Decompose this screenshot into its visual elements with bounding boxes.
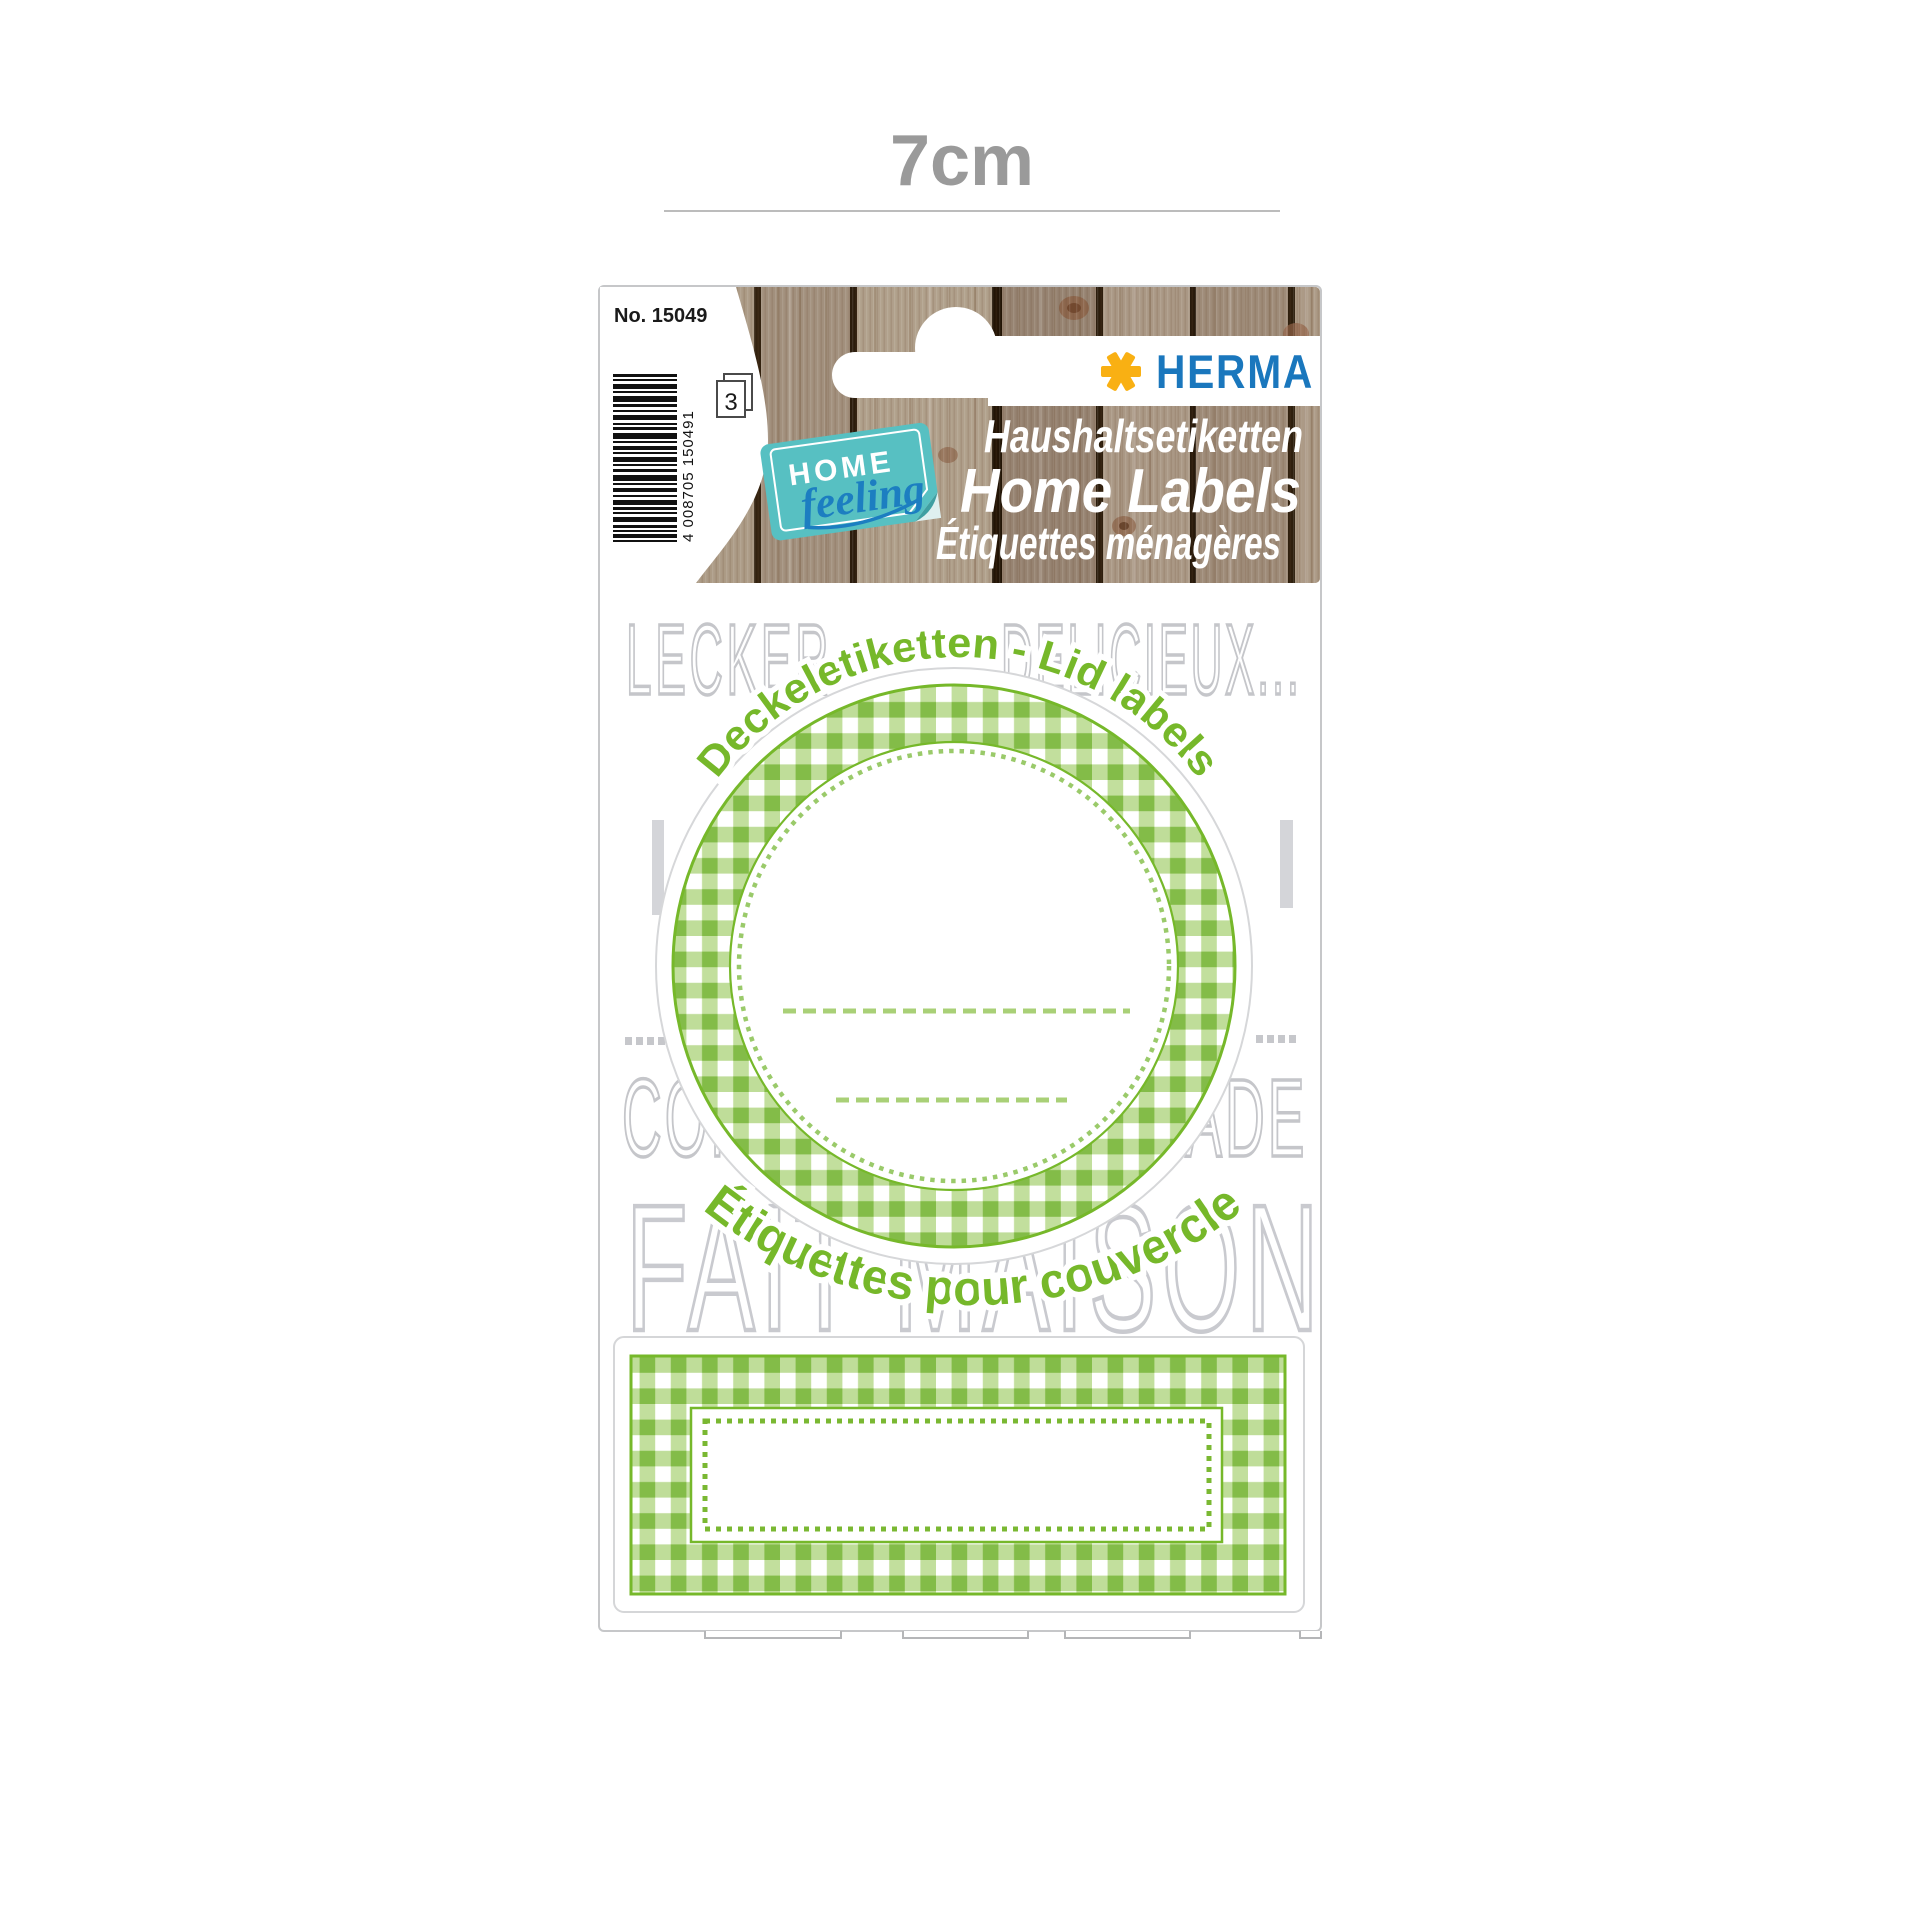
svg-text:Home Labels: Home Labels — [960, 457, 1301, 526]
svg-text:Haushaltsetiketten: Haushaltsetiketten — [984, 410, 1303, 462]
svg-text:No. 15049: No. 15049 — [614, 305, 707, 327]
svg-text:4 008705 150491: 4 008705 150491 — [680, 410, 697, 542]
svg-text:3: 3 — [724, 389, 737, 416]
svg-text:HERMA: HERMA — [1156, 345, 1314, 398]
svg-text:Étiquettes ménagères: Étiquettes ménagères — [936, 517, 1281, 569]
